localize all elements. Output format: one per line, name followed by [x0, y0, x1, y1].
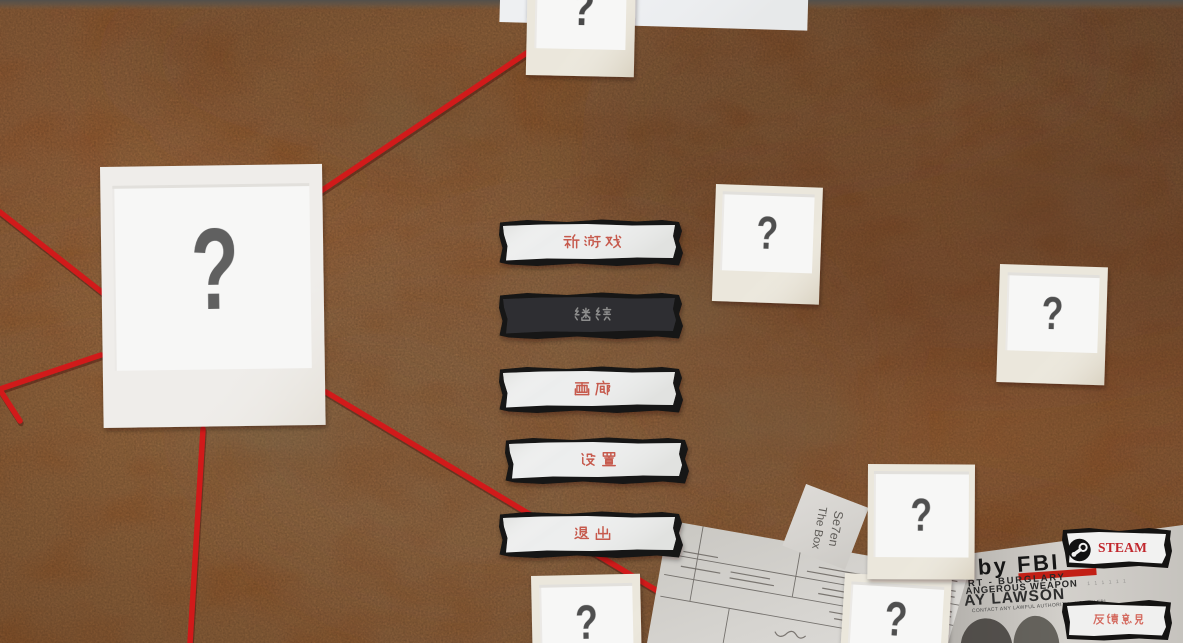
svg-text:?: ? — [755, 207, 779, 259]
svg-text:?: ? — [910, 490, 932, 541]
svg-text:?: ? — [883, 593, 909, 643]
svg-text:?: ? — [190, 205, 240, 335]
svg-text:STEAM: STEAM — [1098, 540, 1147, 555]
svg-text:?: ? — [570, 0, 596, 36]
svg-text:?: ? — [575, 596, 599, 643]
svg-text:?: ? — [1041, 288, 1065, 340]
